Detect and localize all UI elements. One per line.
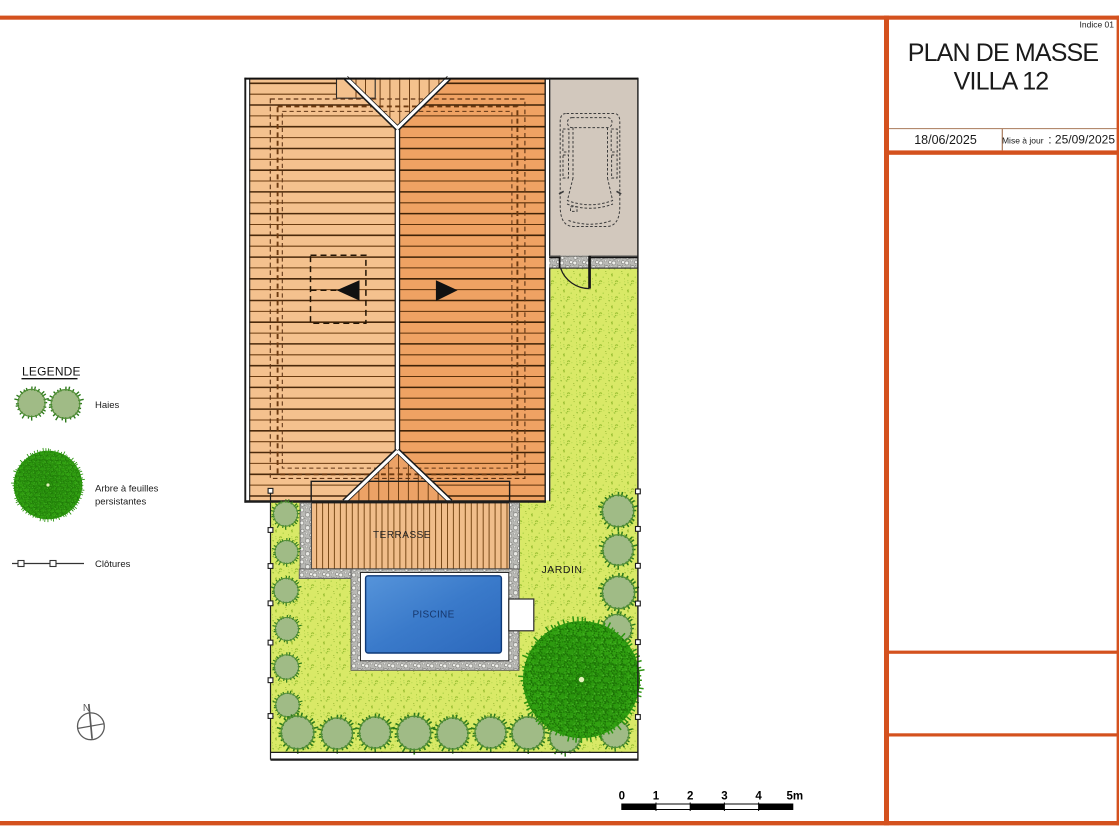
- svg-text:Indice 01: Indice 01: [1080, 20, 1115, 30]
- svg-text:TERRASSE: TERRASSE: [373, 530, 431, 541]
- svg-text:JARDIN: JARDIN: [542, 564, 583, 576]
- svg-text:2: 2: [687, 791, 693, 803]
- svg-text:PISCINE: PISCINE: [412, 610, 454, 621]
- svg-text:3: 3: [721, 791, 727, 803]
- svg-text:5m: 5m: [786, 791, 803, 803]
- svg-text:VILLA 12: VILLA 12: [954, 68, 1049, 96]
- svg-text:Clôtures: Clôtures: [95, 559, 131, 570]
- svg-text:Arbre à feuilles: Arbre à feuilles: [95, 484, 159, 495]
- svg-text:PLAN DE MASSE: PLAN DE MASSE: [908, 39, 1099, 67]
- svg-text:Haies: Haies: [95, 400, 120, 411]
- svg-text:0: 0: [619, 791, 625, 803]
- svg-text:N: N: [83, 703, 90, 714]
- svg-text:1: 1: [653, 791, 660, 803]
- svg-text:persistantes: persistantes: [95, 497, 146, 508]
- svg-text:18/06/2025: 18/06/2025: [914, 133, 977, 147]
- svg-text:Mise à jour : 25/09/2025: Mise à jour : 25/09/2025: [1002, 133, 1115, 147]
- svg-text:LEGENDE: LEGENDE: [22, 365, 81, 379]
- svg-text:4: 4: [755, 791, 762, 803]
